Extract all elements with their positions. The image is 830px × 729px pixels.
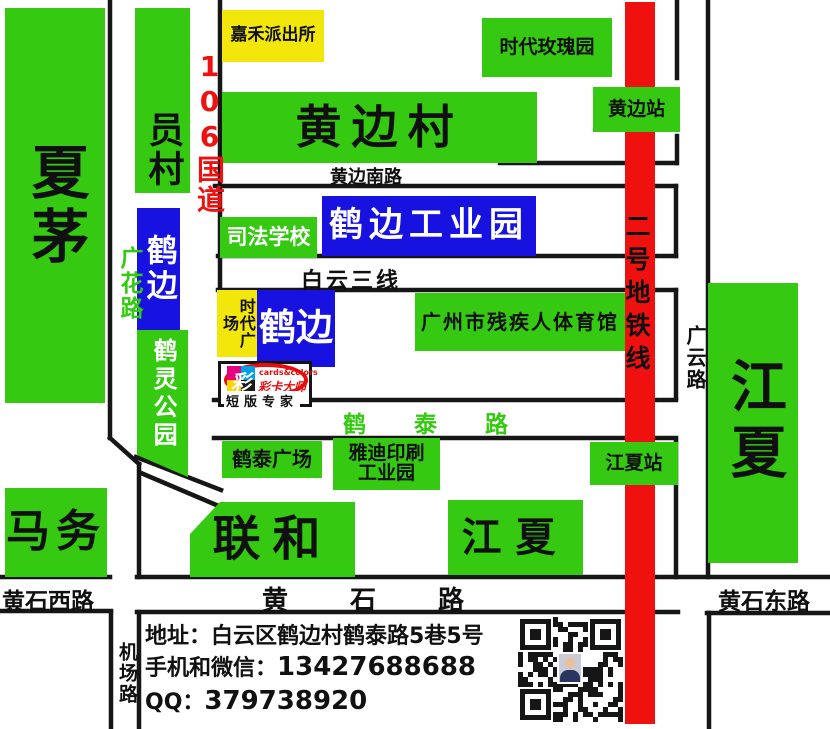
label-jiangxia-station: 江夏站 xyxy=(605,454,662,474)
block-gz-disabled-sports-center: 广州市残疾人体育馆 xyxy=(415,293,625,351)
block-lianhe: 联和 xyxy=(190,502,355,577)
label-yadi-printing-park-line2: 工业园 xyxy=(358,464,415,484)
brand-tagline: 短版专家 xyxy=(224,391,300,410)
contact-address-label: 地址： xyxy=(145,624,211,649)
brand-name-en: cards&colors xyxy=(259,368,318,377)
label-hebian: 鹤边 xyxy=(259,309,333,348)
block-times-rose-garden: 时代玫瑰园 xyxy=(482,18,612,77)
block-heling-park: 鹤灵公园 xyxy=(137,330,188,477)
road-label-huangbian-south: 黄边南路 xyxy=(330,163,402,189)
road-label-baiyun-third-line: 白云三线 xyxy=(301,263,401,295)
block-jiahe-police-station: 嘉禾派出所 xyxy=(222,10,324,62)
road-label-huangshi-west: 黄石西路 xyxy=(2,582,94,616)
contact-address-value: 白云区鹤边村鹤泰路5巷5号 xyxy=(211,624,484,649)
label-yadi-printing-park-line1: 雅迪印刷 xyxy=(348,444,424,464)
photo-body xyxy=(560,670,580,682)
label-xiamao: 夏茅 xyxy=(25,142,86,270)
label-jiahe-police-station: 嘉禾派出所 xyxy=(231,27,316,45)
label-times-plaza: 时代广场 xyxy=(220,290,254,357)
block-huangbian-village: 黄边村 xyxy=(222,92,537,163)
label-hebian-west: 鹤边 xyxy=(142,234,175,304)
label-times-rose-garden: 时代玫瑰园 xyxy=(499,38,594,58)
label-jiangxia-town: 江夏 xyxy=(462,517,570,559)
contact-phone-line: 手机和微信：13427688688 xyxy=(145,650,476,682)
contact-address-line: 地址：白云区鹤边村鹤泰路5巷5号 xyxy=(145,618,484,650)
label-mawu: 马务 xyxy=(6,509,106,555)
road-label-g106: 106国道 xyxy=(189,50,229,215)
label-gz-disabled-sports-center: 广州市残疾人体育馆 xyxy=(421,312,619,333)
block-huangbian-station: 黄边站 xyxy=(593,87,680,132)
label-heling-park: 鹤灵公园 xyxy=(150,338,175,450)
contact-qq-line: QQ：379738920 xyxy=(145,684,367,716)
road-label-guangyun: 广云路 xyxy=(681,325,710,391)
label-hebian-industrial-park: 鹤边工业园 xyxy=(329,208,529,244)
road-label-huangshi-east: 黄石东路 xyxy=(718,582,810,616)
block-hebian: 鹤边 xyxy=(257,290,335,367)
contact-qq-value: 379738920 xyxy=(204,686,367,716)
brand-logo-mark: 彩 xyxy=(227,366,255,394)
label-hetai-plaza: 鹤泰广场 xyxy=(232,449,312,470)
label-lianhe: 联和 xyxy=(212,514,332,564)
block-jiangxia-station: 江夏站 xyxy=(590,442,678,485)
qr-center-photo xyxy=(557,652,583,684)
label-huangbian-station: 黄边站 xyxy=(608,100,665,120)
road-label-hetai: 鹤泰路 xyxy=(343,405,556,439)
photo-head xyxy=(565,658,575,668)
block-xiamao: 夏茅 xyxy=(5,8,105,403)
block-yuancun: 员村 xyxy=(135,8,190,193)
block-mawu: 马务 xyxy=(5,488,107,577)
contact-phone-label: 手机和微信： xyxy=(145,656,277,681)
location-map: 二号地铁线 夏茅 员村 嘉禾派出所 黄边村 时代玫瑰园 司法学校 鹤边工业园 鹤… xyxy=(0,0,830,729)
road-label-airport: 机场路 xyxy=(114,642,141,705)
contact-phone-value: 13427688688 xyxy=(277,652,476,682)
block-jiangxia-east: 江夏 xyxy=(708,283,798,563)
contact-qq-label: QQ： xyxy=(145,690,204,715)
label-judicial-school: 司法学校 xyxy=(227,226,311,248)
block-yadi-printing-park: 雅迪印刷 工业园 xyxy=(333,438,440,490)
block-hetai-plaza: 鹤泰广场 xyxy=(222,441,322,478)
block-hebian-industrial-park: 鹤边工业园 xyxy=(322,196,536,256)
road-label-guanghua: 广花路 xyxy=(112,246,146,321)
label-huangbian-village: 黄边村 xyxy=(296,103,464,151)
block-times-plaza: 时代广场 xyxy=(217,290,257,357)
block-judicial-school: 司法学校 xyxy=(220,217,317,258)
block-jiangxia-town: 江夏 xyxy=(448,500,583,575)
road-label-huangshi: 黄石路 xyxy=(262,580,526,617)
label-jiangxia-east: 江夏 xyxy=(724,357,783,489)
metro-line-2-label: 二号地铁线 xyxy=(627,213,654,378)
logo-mark-char: 彩 xyxy=(227,366,255,394)
label-yuancun: 员村 xyxy=(144,111,182,189)
